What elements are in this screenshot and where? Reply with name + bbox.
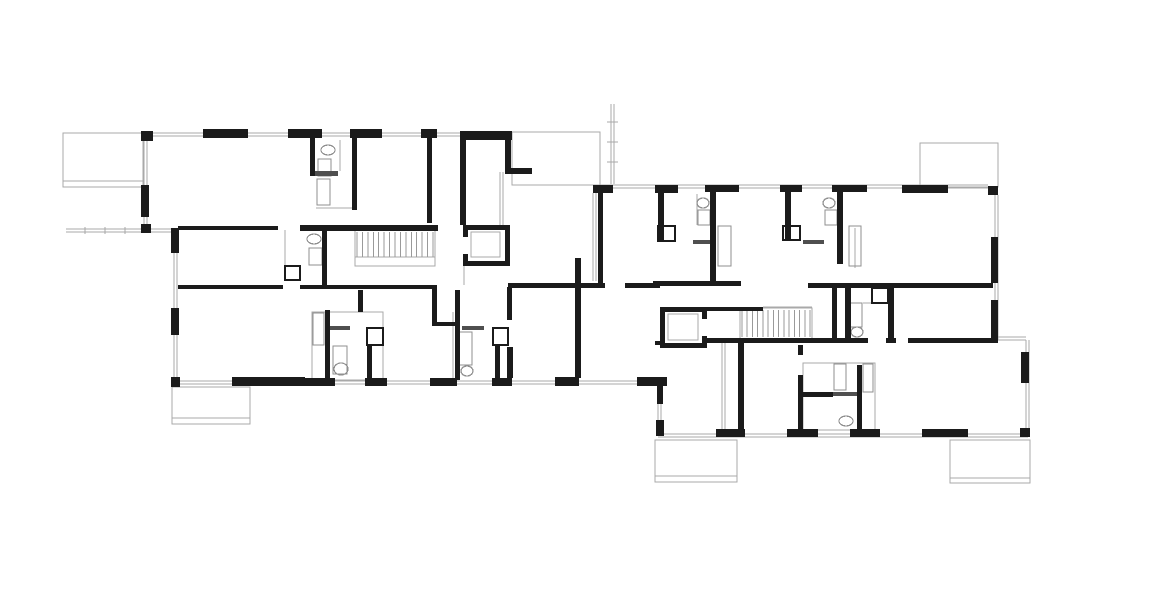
terrace-edge-lines-layer [63,181,1030,478]
floor-plan-page [0,0,1170,591]
floor-plan-svg [0,0,1170,591]
balcony-railing-layer [607,104,618,184]
garden-fence-layer [66,227,143,234]
wall-layer [141,129,1030,437]
bathroom-outline-layer [312,312,875,430]
